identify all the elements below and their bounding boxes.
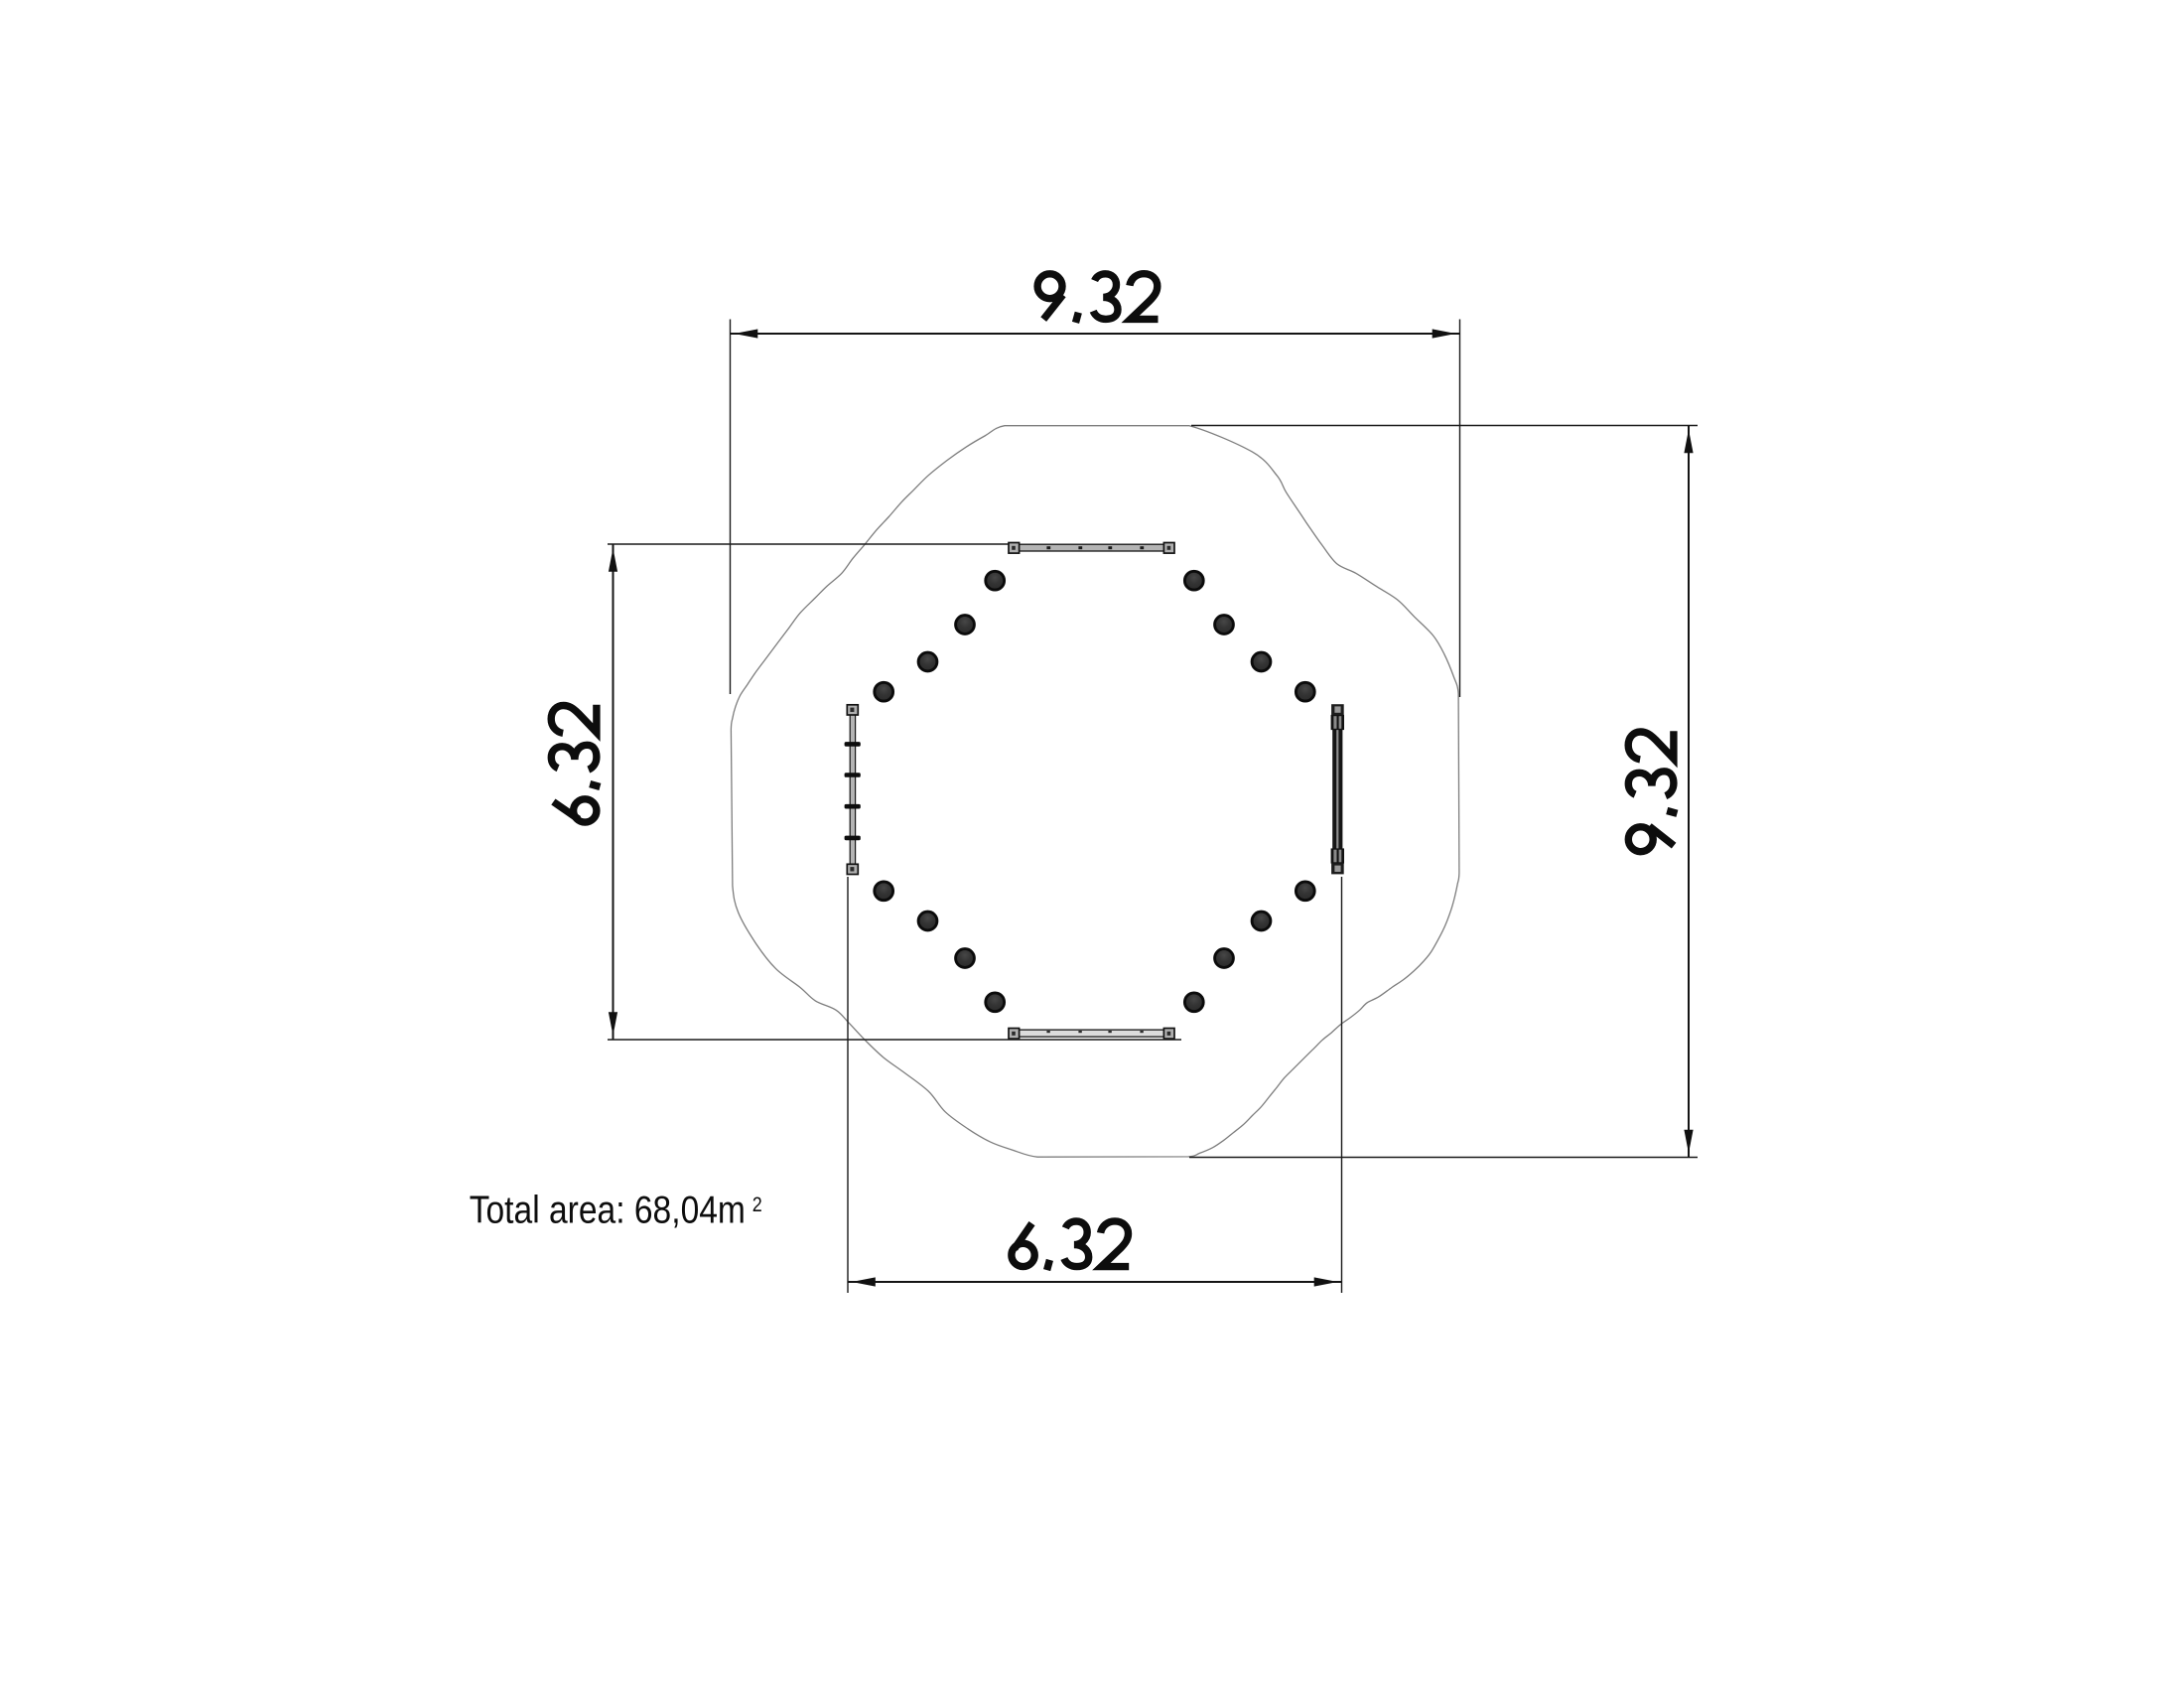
- svg-text:Total area: 68,04m2: Total area: 68,04m2: [470, 1188, 762, 1231]
